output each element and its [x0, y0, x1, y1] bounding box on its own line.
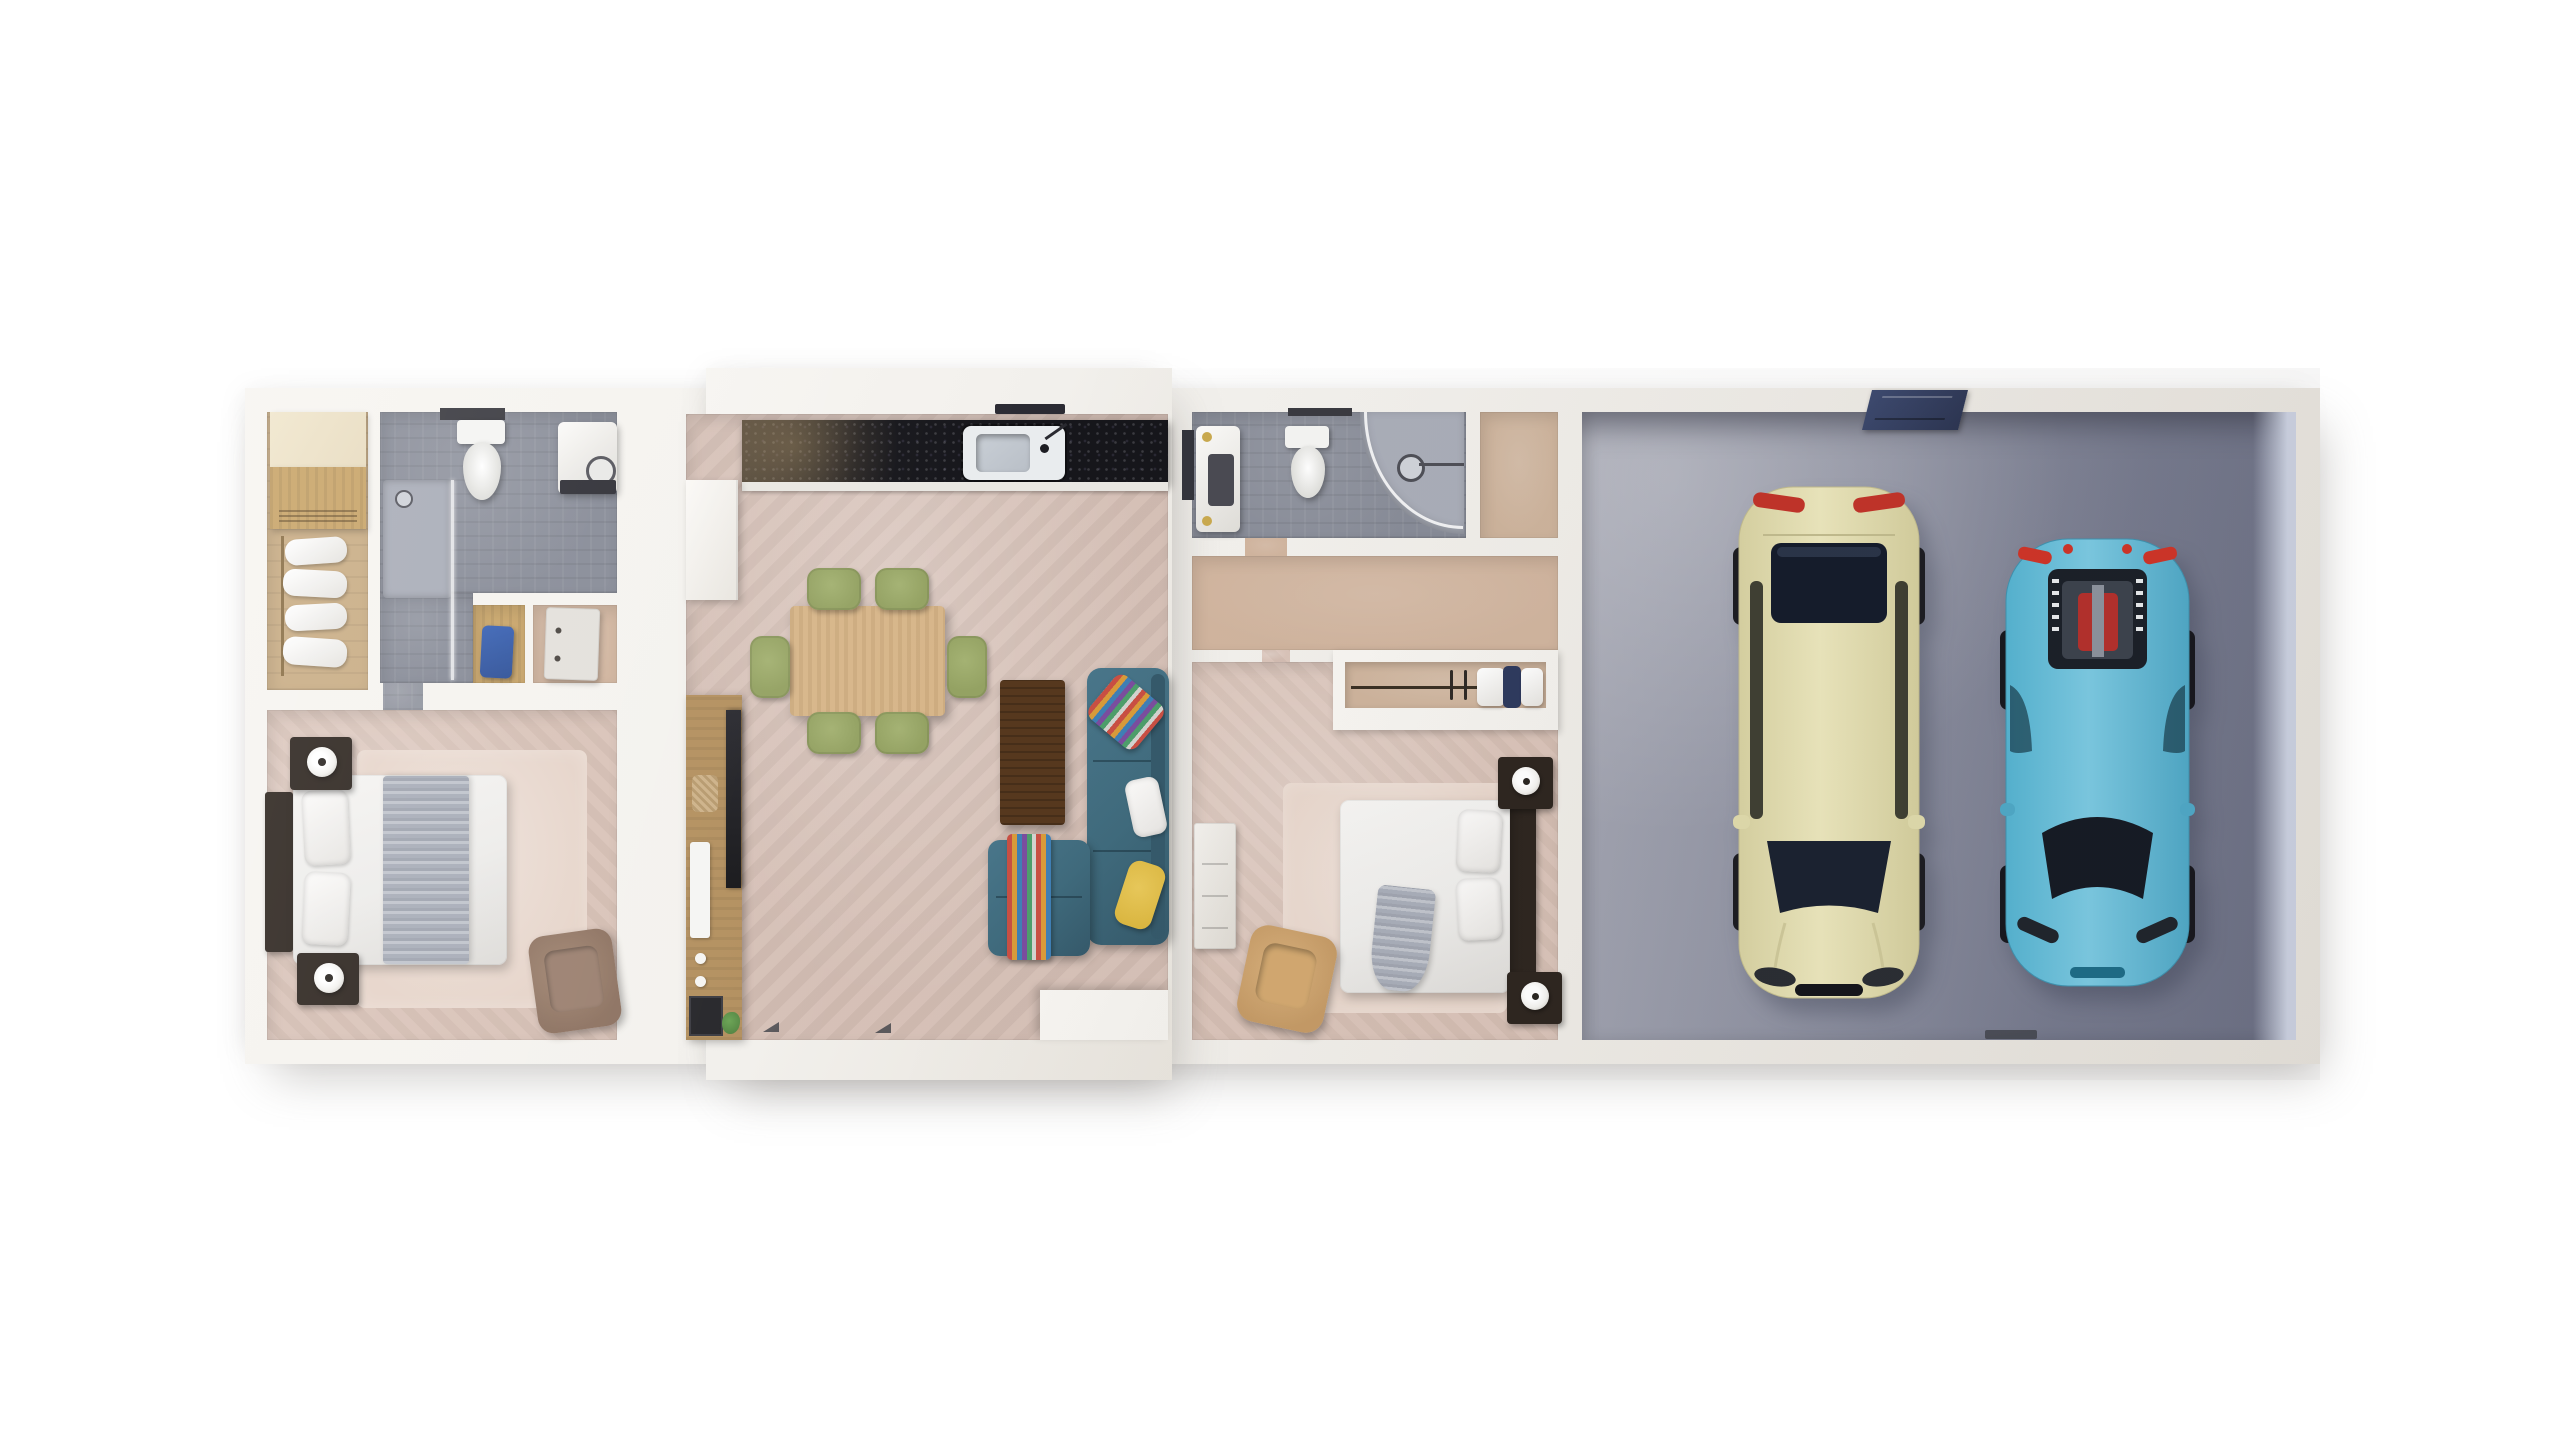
door-mark [763, 1022, 779, 1032]
closet-upper-cabinet [270, 412, 366, 467]
room-master-bathroom-lower [380, 593, 473, 683]
hanging-clothes [282, 568, 347, 598]
wall-niche [440, 408, 505, 420]
shower-arm [1419, 463, 1464, 466]
pillow [301, 871, 351, 946]
room-hallway-2 [1192, 556, 1558, 650]
table-lamp [314, 963, 344, 993]
sink-faucet [1040, 444, 1049, 453]
door-opening [1245, 538, 1287, 556]
throw-blanket [383, 776, 469, 964]
garage-wall-face [2253, 412, 2296, 1040]
garage-threshold-mark [1985, 1030, 2037, 1039]
range-hood [995, 404, 1065, 414]
shower-tray [383, 480, 451, 598]
closet-shelf-lines [279, 508, 357, 522]
tv [726, 710, 741, 888]
hanging-clothes [1521, 668, 1543, 706]
hanger [1450, 670, 1453, 700]
shower-head [395, 490, 413, 508]
hanging-clothes [1477, 668, 1505, 706]
hanging-clothes-dark [1503, 666, 1521, 708]
picture-frame [689, 996, 723, 1036]
entry-half-wall [1040, 990, 1168, 1040]
counter-front-lip [742, 482, 1168, 491]
floor-plan [245, 368, 2320, 1080]
garage-roof-window [1862, 390, 1968, 430]
hanging-clothes [284, 602, 347, 631]
console-tray [690, 842, 710, 938]
fridge-cabinet [686, 480, 738, 600]
table-lamp [1512, 767, 1540, 795]
dining-chair [807, 568, 861, 610]
pillow [301, 789, 351, 866]
hanging-clothes [284, 536, 348, 566]
door-opening [1262, 650, 1290, 662]
car-sedan [1733, 485, 1925, 1000]
toilet-tank [457, 420, 505, 444]
headboard [265, 792, 293, 952]
striped-throw [1007, 834, 1051, 960]
pillow [1455, 877, 1502, 941]
basket [692, 775, 718, 812]
shower-head [1397, 454, 1425, 482]
shower-glass [451, 480, 454, 680]
coffee-table [1000, 680, 1065, 825]
dining-chair [875, 568, 929, 610]
dining-chair [875, 712, 929, 754]
headboard [1510, 803, 1536, 987]
dining-chair [750, 636, 790, 698]
vanity-inner [1208, 454, 1234, 506]
door-opening [383, 683, 423, 710]
toilet-tank [1285, 426, 1329, 448]
render-canvas [0, 0, 2560, 1440]
gold-fixture [1202, 516, 1212, 526]
table-lamp [1521, 982, 1549, 1010]
counter-reflection [742, 420, 892, 484]
cup [695, 976, 706, 987]
dining-table [790, 606, 945, 716]
nook-dresser [544, 607, 600, 681]
washer-dark-ledge [560, 480, 616, 494]
cup [695, 953, 706, 964]
hanging-clothes [282, 636, 348, 668]
pillow [1455, 809, 1502, 873]
room-entry-closet [1480, 412, 1558, 538]
utility-blue-item [480, 625, 515, 679]
dining-chair [947, 636, 987, 698]
wall-mirror [1182, 430, 1194, 500]
gold-fixture [1202, 432, 1212, 442]
door-mark [875, 1023, 891, 1033]
dining-chair [807, 712, 861, 754]
car-sports [2000, 535, 2195, 990]
hanger [1464, 670, 1467, 700]
sink-basin [976, 434, 1030, 472]
towel-rail [1288, 408, 1352, 416]
table-lamp [307, 747, 337, 777]
armchair-seat [543, 945, 605, 1014]
dresser [1194, 823, 1236, 949]
